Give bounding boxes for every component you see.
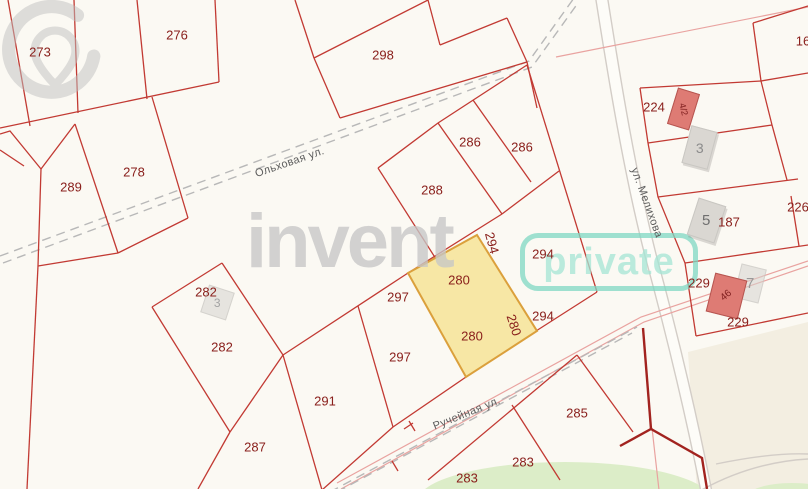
highlighted-parcel-280[interactable] [408,235,537,377]
map-canvas[interactable]: invent private 3357464/2 273276298289278… [0,0,808,489]
roads [0,0,808,489]
map-layers [0,0,808,489]
road-olkhovaya [0,0,574,256]
